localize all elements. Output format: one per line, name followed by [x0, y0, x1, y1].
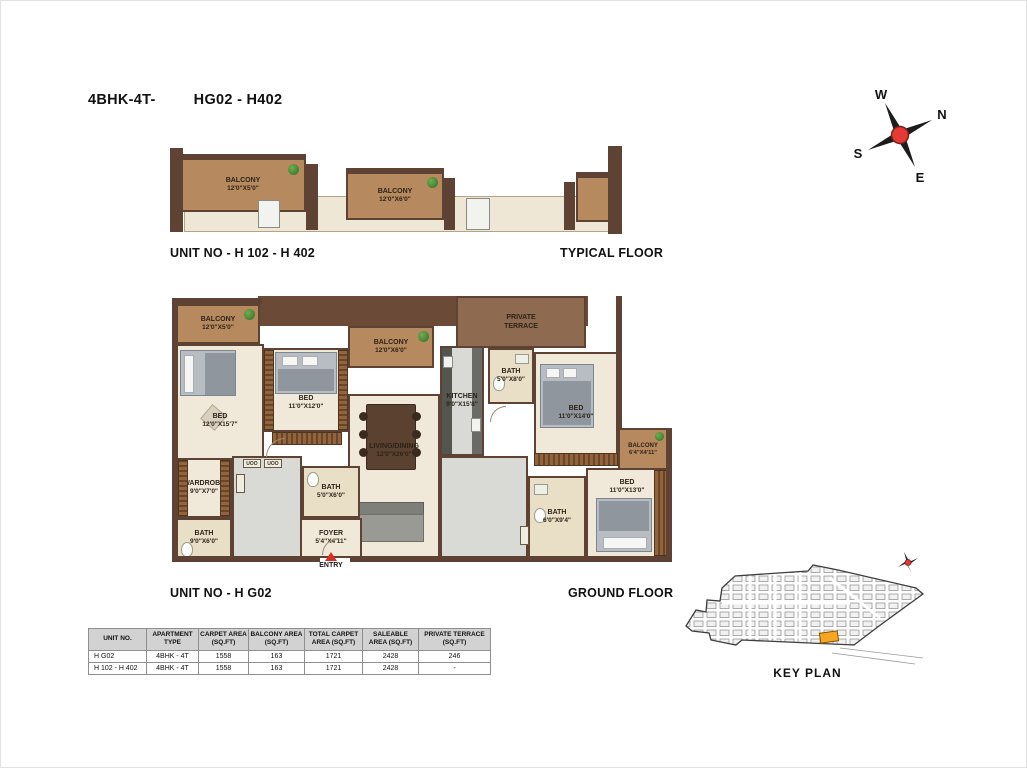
room-dims: 6'0"X9'4" [543, 517, 571, 526]
room-name: BED [569, 405, 584, 412]
bathroom-1: BATH 5'0"X8'0" [488, 348, 534, 404]
compass-label-n: N [937, 107, 946, 122]
cabinet-box: UOO [243, 459, 261, 468]
bedroom-1: BED 12'0"X15'7" [176, 344, 264, 462]
bed-icon [275, 352, 337, 394]
cell-total-carpet-area: 1721 [305, 650, 363, 662]
dresser-icon [534, 453, 618, 466]
room-name: BED [620, 479, 635, 486]
room-label: BALCONY 12'0"X6'0" [378, 187, 413, 205]
key-plan-map [680, 548, 935, 668]
cell-carpet-area: 1558 [199, 662, 249, 674]
sink-icon [534, 484, 548, 495]
private-terrace: PRIVATE TERRACE [456, 296, 586, 348]
room-label: BATH 6'0"X9'4" [543, 508, 571, 526]
area-table: UNIT NO. APARTMENT TYPE CARPET AREA (SQ.… [88, 628, 491, 675]
compass-label-e: E [916, 170, 925, 185]
blanket-icon [278, 369, 334, 391]
page-title: 4BHK-4T- HG02 - H402 [88, 92, 282, 108]
fixture-box [258, 200, 280, 228]
highlighted-building [819, 631, 838, 643]
cell-unit-no: H 102 - H 402 [89, 662, 147, 674]
wall-segment [608, 146, 622, 234]
room-label: BALCONY 12'0"X5'0" [226, 176, 261, 194]
room-dims: 9'0"X6'0" [190, 538, 218, 547]
wall-segment [170, 148, 183, 232]
entry-arrow-icon [325, 552, 337, 561]
room-name: BED [213, 413, 228, 420]
ground-floor-name-label: GROUND FLOOR [568, 586, 673, 600]
balcony-1: BALCONY 12'0"X5'0" [176, 304, 260, 344]
room-label: LIVING/DINING 12'0"X26'0" [369, 442, 419, 460]
typical-floor-plan: BALCONY 12'0"X5'0" BALCONY 12'0"X6'0" [160, 138, 630, 238]
bathroom-3: BATH 5'0"X6'0" [302, 466, 360, 518]
cell-balcony-area: 163 [249, 650, 305, 662]
col-header: TOTAL CARPET AREA (SQ.FT) [305, 629, 363, 651]
sink-icon [515, 354, 529, 364]
corridor-right [440, 456, 528, 558]
room-label: BALCONY 6'4"X4'11" [628, 442, 658, 458]
compass-label-w: W [875, 87, 888, 102]
entry-label: ENTRY [299, 562, 363, 569]
wardrobe-strip [178, 460, 188, 516]
room-name: BATH [195, 530, 214, 537]
pillow-icon [603, 537, 647, 549]
cell-unit-no: H G02 [89, 650, 147, 662]
room-dims: 12'0"X26'0" [369, 451, 419, 460]
sofa-icon [356, 514, 424, 542]
wall-segment [306, 164, 318, 230]
cabinet-box [520, 526, 529, 545]
unit-range-title: HG02 - H402 [194, 92, 283, 108]
room-name: PRIVATE TERRACE [504, 314, 538, 330]
compass-center [892, 127, 909, 144]
col-header: BALCONY AREA (SQ.FT) [249, 629, 305, 651]
table-row: H G02 4BHK - 4T 1558 163 1721 2428 246 [89, 650, 491, 662]
room-name: BED [299, 395, 314, 402]
pillow-icon [302, 356, 318, 366]
room-label: BATH 5'0"X8'0" [497, 367, 525, 385]
room-name: BATH [322, 484, 341, 491]
table-row: H 102 - H 402 4BHK - 4T 1558 163 1721 24… [89, 662, 491, 674]
wall-segment [666, 428, 672, 562]
pillow-icon [282, 356, 298, 366]
sink-icon [443, 356, 453, 368]
bed-icon [596, 498, 652, 552]
room-label: PRIVATE TERRACE [491, 313, 551, 332]
room-name: BALCONY [201, 316, 236, 323]
chair-icon [412, 430, 421, 439]
unit-type-title: 4BHK-4T- [88, 92, 156, 108]
wall-segment [350, 556, 668, 562]
chair-icon [412, 412, 421, 421]
wardrobe-strip [220, 460, 230, 516]
bed-icon [180, 350, 236, 396]
key-plan-buildings [686, 565, 923, 645]
room-dims: 5'0"X6'0" [317, 492, 345, 501]
plant-icon [427, 177, 438, 188]
blanket-icon [205, 353, 235, 395]
compass-label-s: S [854, 146, 863, 161]
key-plan-hatch-line [832, 653, 915, 664]
cell-apartment-type: 4BHK - 4T [147, 662, 199, 674]
room-label: BED 11'0"X12'0" [289, 394, 324, 412]
col-header: PRIVATE TERRACE (SQ.FT) [419, 629, 491, 651]
cell-apartment-type: 4BHK - 4T [147, 650, 199, 662]
wall-segment [172, 300, 178, 560]
bedroom-3: BED 11'0"X14'0" [534, 352, 618, 466]
blanket-icon [599, 501, 649, 531]
ground-floor-unit-label: UNIT NO - H G02 [170, 586, 272, 600]
cell-private-terrace: - [419, 662, 491, 674]
room-dims: 12'0"X6'0" [378, 196, 413, 205]
wall-segment [444, 178, 455, 230]
typical-balcony-1: BALCONY 12'0"X5'0" [180, 154, 306, 212]
door-swing [266, 438, 285, 457]
room-dims: 12'0"X15'7" [202, 421, 237, 430]
key-plan-hatch-line [840, 648, 923, 658]
ground-floor-plan: PRIVATE TERRACE BALCONY 12'0"X5'0" BALCO… [172, 292, 672, 572]
plant-icon [418, 331, 429, 342]
room-dims: 11'0"X12'0" [289, 403, 324, 412]
bedroom-2: BED 11'0"X12'0" [264, 348, 348, 432]
plant-icon [244, 309, 255, 320]
chair-icon [359, 412, 368, 421]
room-name: KITCHEN [446, 393, 477, 400]
room-name: BALCONY [628, 443, 658, 449]
wardrobe-strip [338, 350, 348, 430]
col-header: SALEABLE AREA (SQ.FT) [363, 629, 419, 651]
cell-total-carpet-area: 1721 [305, 662, 363, 674]
plant-icon [288, 164, 299, 175]
chair-icon [359, 430, 368, 439]
room-name: FOYER [319, 530, 343, 537]
cell-saleable-area: 2428 [363, 662, 419, 674]
kitchen: KITCHEN 9'0"X15'8" [440, 346, 484, 456]
balcony-2: BALCONY 12'0"X6'0" [348, 326, 434, 368]
corridor-left [232, 456, 302, 558]
chair-icon [359, 448, 368, 457]
cell-balcony-area: 163 [249, 662, 305, 674]
room-label: BED 11'0"X14'0" [559, 404, 594, 422]
room-name: BATH [502, 368, 521, 375]
room-dims: 11'0"X13'0" [610, 487, 645, 496]
typical-floor-unit-label: UNIT NO - H 102 - H 402 [170, 246, 315, 260]
room-name: BATH [548, 509, 567, 516]
room-dims: 12'0"X6'0" [374, 347, 409, 356]
pillow-icon [563, 368, 577, 378]
room-dims: 9'0"X15'8" [446, 401, 478, 410]
wall-segment [616, 296, 622, 428]
bathroom-4: BATH 6'0"X9'4" [528, 476, 586, 558]
bathroom-2: BATH 9'0"X6'0" [176, 518, 232, 558]
wall-segment [172, 298, 262, 304]
room-dims: 5'0"X8'0" [497, 376, 525, 385]
room-label: BED 12'0"X15'7" [202, 412, 237, 430]
table-header-row: UNIT NO. APARTMENT TYPE CARPET AREA (SQ.… [89, 629, 491, 651]
room-label: BATH 9'0"X6'0" [190, 529, 218, 547]
cabinet-box: UOO [264, 459, 282, 468]
room-dims: 11'0"X14'0" [559, 413, 594, 422]
compass-icon: W N S E [845, 85, 955, 185]
col-header: APARTMENT TYPE [147, 629, 199, 651]
key-plan-label: KEY PLAN [680, 666, 935, 680]
col-header: UNIT NO. [89, 629, 147, 651]
cell-carpet-area: 1558 [199, 650, 249, 662]
room-label: BED 11'0"X13'0" [610, 478, 645, 496]
typical-balcony-2: BALCONY 12'0"X6'0" [346, 168, 444, 220]
room-label: BALCONY 12'0"X6'0" [374, 338, 409, 356]
key-plan-compass-icon [898, 552, 918, 573]
pillow-icon [546, 368, 560, 378]
cabinet-box [236, 474, 245, 493]
room-dims: 12'0"X5'0" [201, 324, 236, 333]
room-name: WARDROBE [183, 480, 225, 487]
floor-plan-sheet: 4BHK-4T- HG02 - H402 W N S E BALCONY 12'… [0, 0, 1027, 768]
stove-icon [471, 418, 481, 432]
entry-marker: ENTRY [299, 552, 363, 569]
room-dims: 12'0"X5'0" [226, 185, 261, 194]
pillow-icon [184, 355, 194, 393]
wall-segment [172, 556, 320, 562]
door-swing [490, 406, 506, 422]
wardrobe-strip [264, 350, 274, 430]
room-label: BATH 5'0"X6'0" [317, 483, 345, 501]
room-name: BALCONY [378, 188, 413, 195]
cell-private-terrace: 246 [419, 650, 491, 662]
plant-icon [655, 432, 664, 441]
col-header: CARPET AREA (SQ.FT) [199, 629, 249, 651]
room-name: BALCONY [374, 339, 409, 346]
typical-floor-name-label: TYPICAL FLOOR [560, 246, 663, 260]
room-label: KITCHEN 9'0"X15'8" [446, 392, 478, 410]
fixture-box [466, 198, 490, 230]
wall-segment [564, 182, 575, 230]
room-name: LIVING/DINING [369, 443, 419, 450]
balcony-3: BALCONY 6'4"X4'11" [618, 428, 668, 472]
room-dims: 6'4"X4'11" [628, 450, 658, 458]
room-name: BALCONY [226, 177, 261, 184]
room-label: BALCONY 12'0"X5'0" [201, 315, 236, 333]
cell-saleable-area: 2428 [363, 650, 419, 662]
